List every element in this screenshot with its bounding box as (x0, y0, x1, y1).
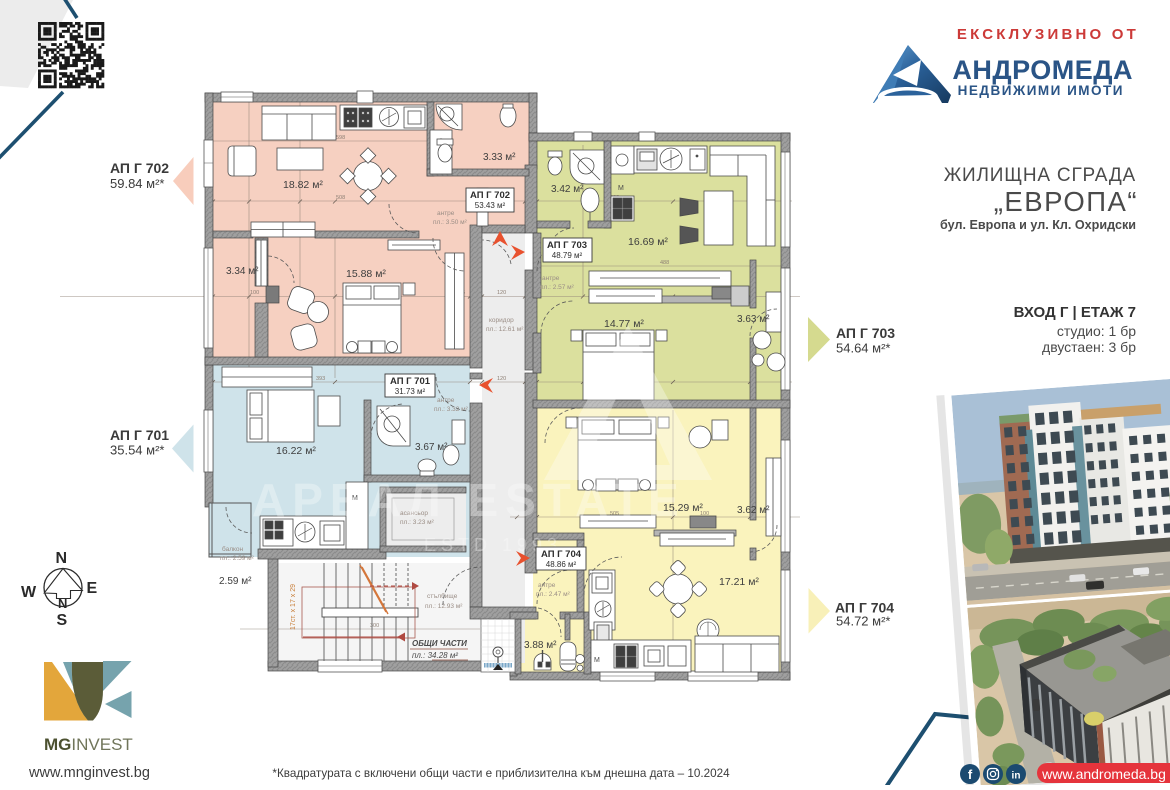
svg-text:АП Г 703: АП Г 703 (547, 240, 587, 251)
svg-text:MGINVEST: MGINVEST (44, 735, 133, 754)
svg-text:НЕДВИЖИМИ ИМОТИ: НЕДВИЖИМИ ИМОТИ (958, 83, 1124, 98)
svg-text:16.69 м²: 16.69 м² (628, 236, 668, 248)
svg-text:14.77 м²: 14.77 м² (604, 318, 644, 330)
svg-text:48.79 м²: 48.79 м² (552, 251, 583, 260)
svg-text:пл.: 2.59 м²: пл.: 2.59 м² (220, 555, 255, 562)
svg-text:16.22 м²: 16.22 м² (276, 445, 316, 457)
svg-text:ОБЩИ ЧАСТИ: ОБЩИ ЧАСТИ (412, 639, 467, 648)
svg-text:пл.: 12.61 м²: пл.: 12.61 м² (486, 326, 524, 333)
svg-text:300: 300 (370, 623, 379, 629)
svg-text:18.82 м²: 18.82 м² (283, 179, 323, 191)
svg-text:100: 100 (250, 290, 259, 296)
svg-text:53.43 м²: 53.43 м² (475, 201, 506, 210)
svg-text:2.59 м²: 2.59 м² (219, 576, 252, 587)
svg-text:бул. Европа и ул. Кл. Охридски: бул. Европа и ул. Кл. Охридски (940, 218, 1136, 232)
svg-text:ВХОД Г | ЕТАЖ 7: ВХОД Г | ЕТАЖ 7 (1014, 304, 1136, 321)
svg-text:балкон: балкон (222, 545, 244, 553)
svg-text:N: N (58, 596, 67, 611)
svg-text:3.67 м²: 3.67 м² (415, 442, 448, 453)
svg-text:M: M (618, 185, 624, 192)
svg-text:www.andromeda.bg: www.andromeda.bg (1041, 766, 1166, 782)
svg-text:студио: 1 бр: студио: 1 бр (1057, 323, 1136, 339)
svg-text:S: S (57, 612, 68, 629)
svg-text:in: in (1012, 771, 1021, 782)
svg-text:АНДРОМЕДА: АНДРОМЕДА (952, 55, 1133, 85)
svg-text:ЕКСКЛУЗИВНО ОТ: ЕКСКЛУЗИВНО ОТ (957, 26, 1139, 43)
svg-text:3.62 м²: 3.62 м² (737, 505, 770, 516)
svg-text:пл.: 2.57 м²: пл.: 2.57 м² (540, 284, 575, 291)
svg-text:АП Г 701: АП Г 701 (110, 427, 169, 443)
svg-text:15.88 м²: 15.88 м² (346, 268, 386, 280)
svg-text:3.88 м²: 3.88 м² (524, 640, 557, 651)
svg-text:488: 488 (660, 260, 669, 266)
svg-text:54.64 м²*: 54.64 м²* (836, 341, 890, 356)
svg-text:„ЕВРОПА“: „ЕВРОПА“ (994, 186, 1138, 217)
svg-text:120: 120 (497, 290, 506, 296)
svg-text:3.33 м²: 3.33 м² (483, 152, 516, 163)
svg-text:АП Г 703: АП Г 703 (836, 325, 895, 341)
svg-text:3.42 м²: 3.42 м² (551, 184, 584, 195)
svg-text:пл.: 3.32 м²: пл.: 3.32 м² (434, 406, 469, 413)
svg-text:двустаен: 3 бр: двустаен: 3 бр (1042, 339, 1136, 355)
svg-text:АП Г 702: АП Г 702 (470, 190, 510, 201)
svg-text:598: 598 (336, 135, 345, 141)
svg-text:54.72 м²*: 54.72 м²* (836, 614, 890, 629)
svg-text:393: 393 (316, 376, 325, 382)
svg-text:N: N (56, 550, 68, 567)
svg-text:48.86 м²: 48.86 м² (546, 560, 577, 569)
svg-text:W: W (21, 584, 37, 601)
svg-text:E: E (87, 580, 98, 597)
svg-text:17.21 м²: 17.21 м² (719, 576, 759, 588)
svg-text:M: M (594, 657, 600, 664)
svg-text:пл.: 2.47 м²: пл.: 2.47 м² (536, 591, 571, 598)
svg-text:пл.: 3.50 м²: пл.: 3.50 м² (433, 219, 468, 226)
svg-text:пл.: 34.28 м²: пл.: 34.28 м² (412, 651, 458, 660)
svg-text:пл.: 12.93 м²: пл.: 12.93 м² (425, 603, 463, 610)
svg-text:f: f (968, 767, 973, 782)
svg-text:59.84 м²*: 59.84 м²* (110, 176, 164, 191)
svg-text:www.mnginvest.bg: www.mnginvest.bg (28, 765, 150, 781)
svg-text:АП Г 701: АП Г 701 (390, 376, 431, 387)
svg-text:508: 508 (336, 195, 345, 201)
svg-text:17ст. x 17 x 29: 17ст. x 17 x 29 (290, 584, 297, 630)
svg-text:31.73 м²: 31.73 м² (395, 387, 426, 396)
svg-text:3.34 м²: 3.34 м² (226, 266, 259, 277)
svg-text:ЖИЛИЩНА СГРАДА: ЖИЛИЩНА СГРАДА (944, 165, 1136, 186)
svg-text:антре: антре (542, 275, 560, 282)
svg-text:АП Г 702: АП Г 702 (110, 160, 169, 176)
svg-text:120: 120 (497, 376, 506, 382)
svg-text:*Квадратурата с включени общи: *Квадратурата с включени общи части е пр… (272, 767, 730, 780)
svg-text:АРЕАЛ ЕSТАТЕ: АРЕАЛ ЕSТАТЕ (252, 474, 686, 526)
svg-text:коридор: коридор (489, 317, 514, 324)
svg-text:антре: антре (437, 210, 455, 217)
svg-text:стълбище: стълбище (427, 592, 458, 600)
svg-text:35.54 м²*: 35.54 м²* (110, 443, 164, 458)
svg-text:АП Г 704: АП Г 704 (541, 549, 582, 560)
